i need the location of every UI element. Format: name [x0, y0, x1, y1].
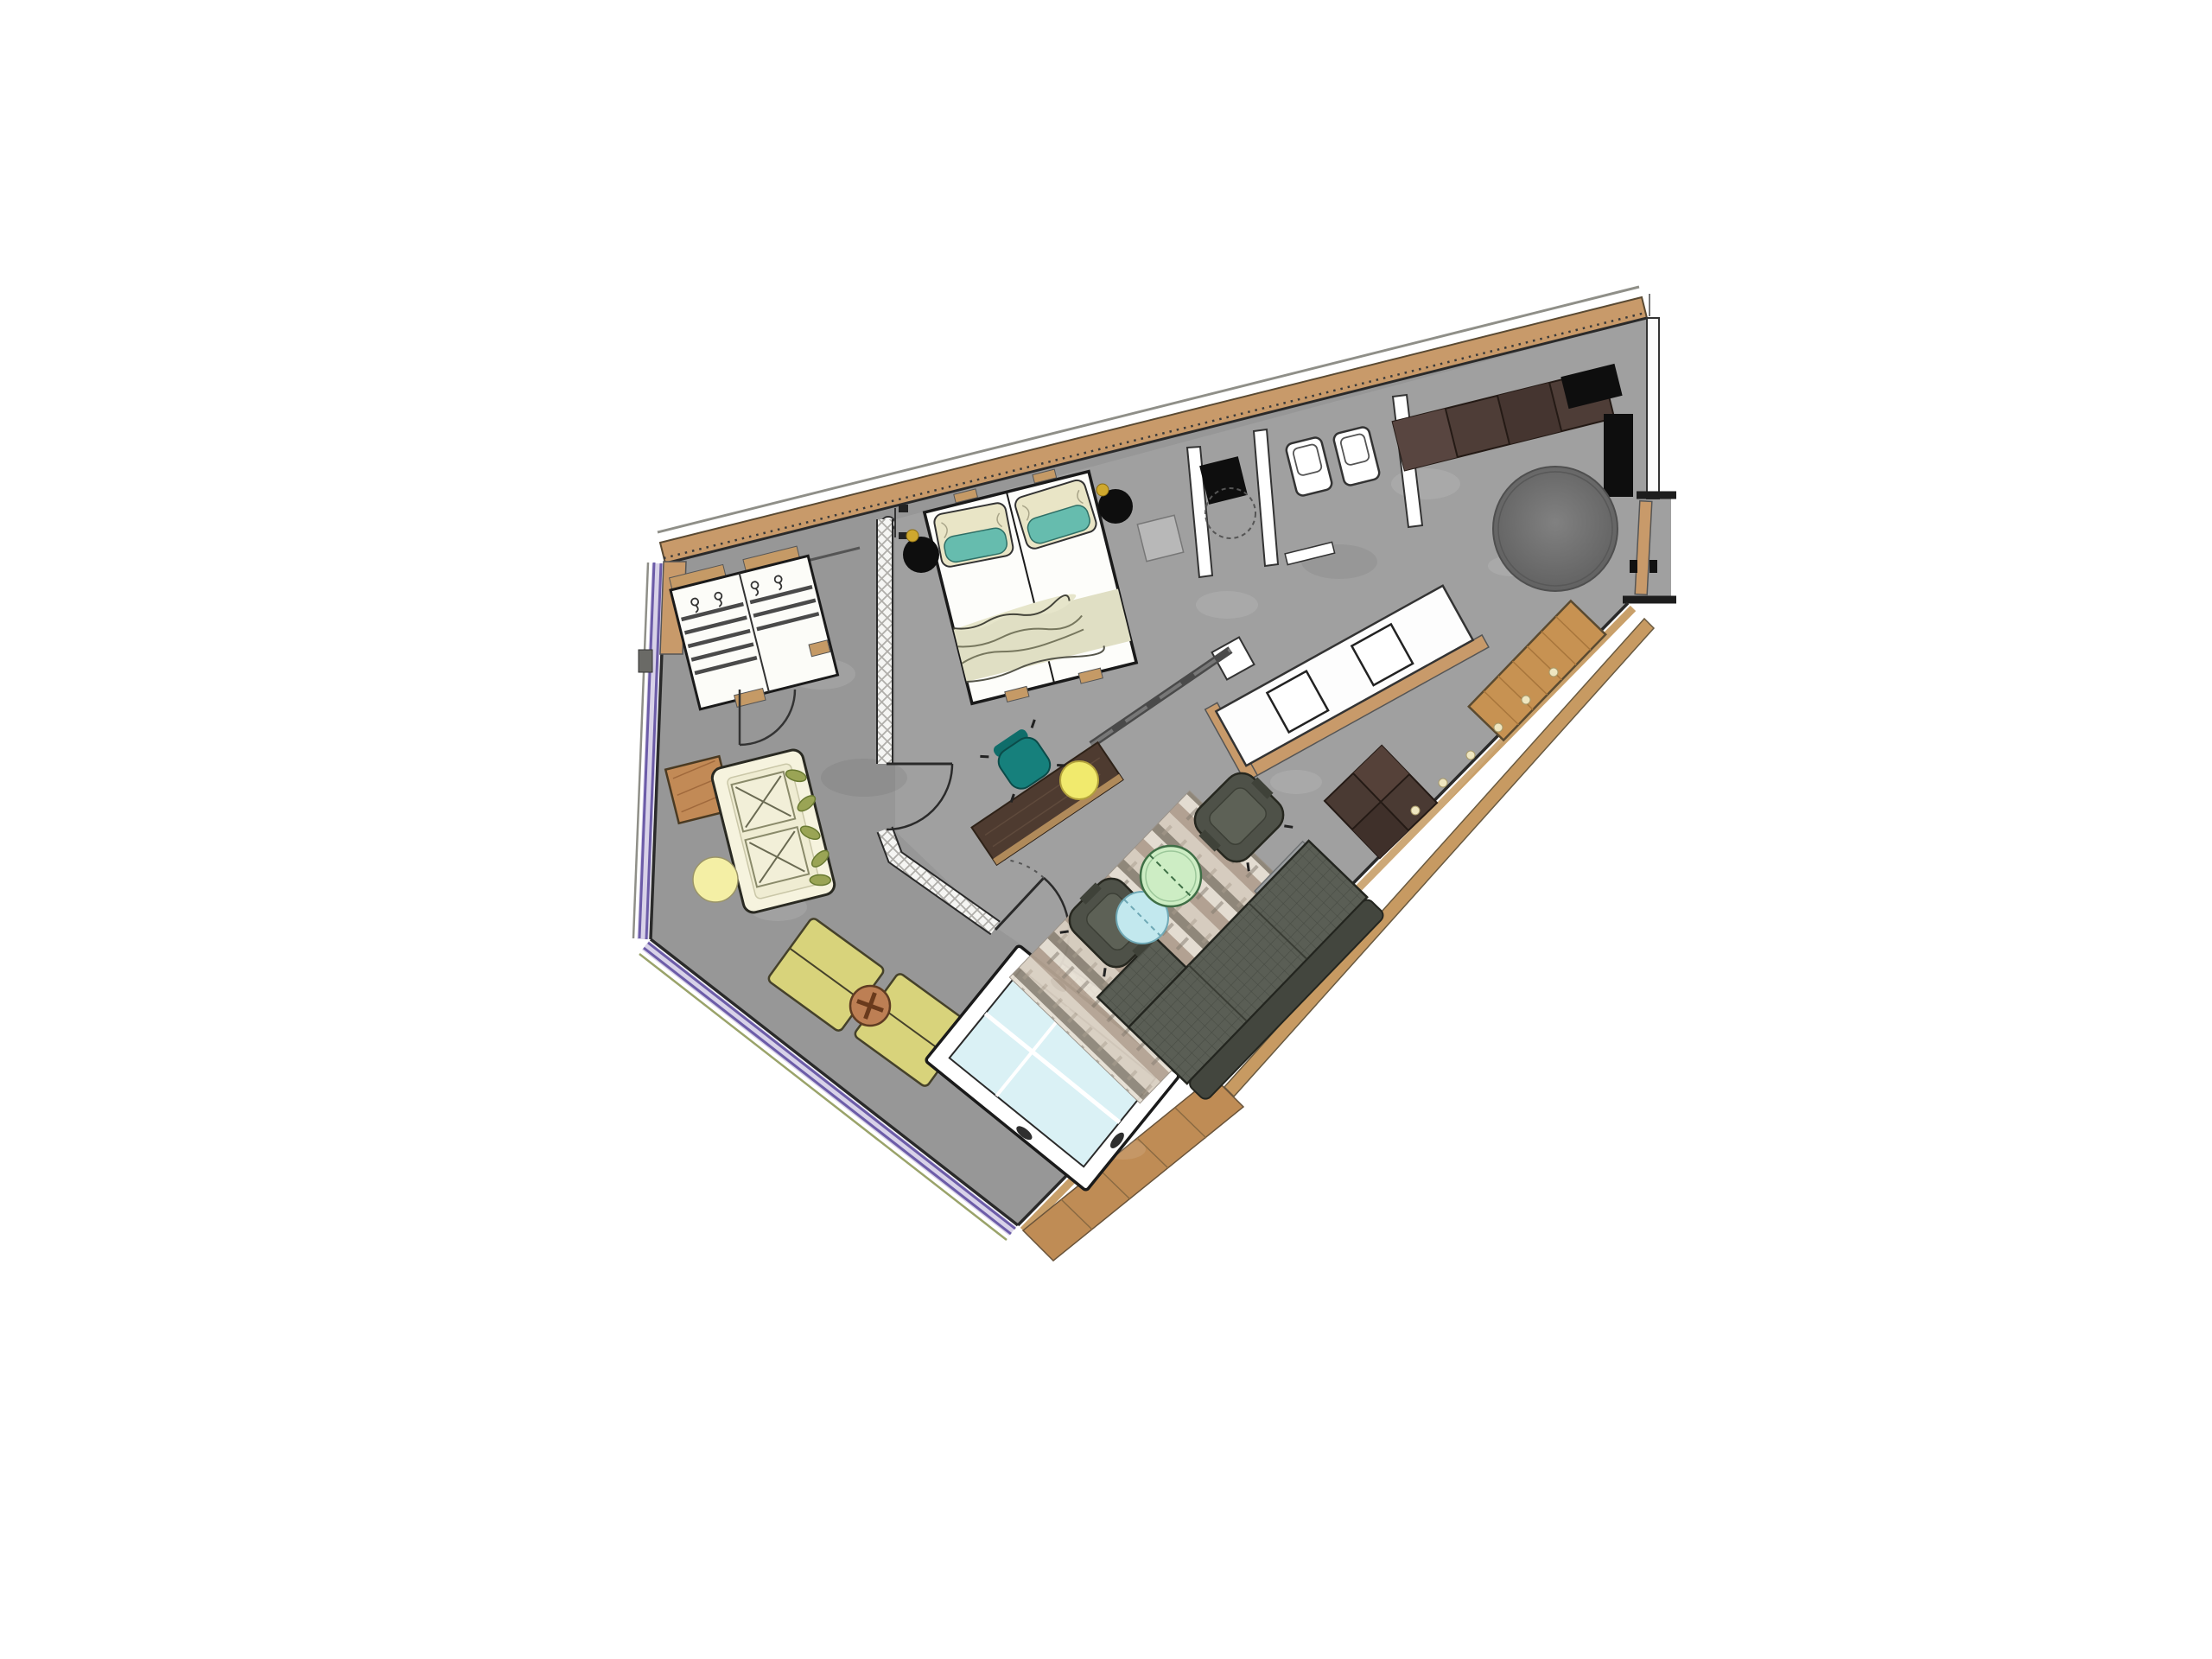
coffee-table-green [1141, 846, 1201, 906]
round-rug [1493, 467, 1618, 591]
bedside-lamp-left [906, 530, 918, 542]
floor-plan [0, 0, 2212, 1659]
door-handle-inner [1630, 560, 1637, 573]
pivot-bracket-top [899, 505, 908, 512]
right-wall [1647, 318, 1659, 499]
pouf [693, 857, 738, 902]
bedside-pendant-left [903, 537, 939, 573]
shower-shelf [1137, 515, 1183, 561]
cross-table [850, 986, 890, 1026]
entry-closet [1604, 414, 1633, 497]
door-handle-outer [1649, 560, 1657, 573]
page [0, 0, 2212, 1659]
bedside-lamp-right [1096, 484, 1109, 496]
window-mullion [639, 650, 652, 672]
stool [1060, 761, 1098, 799]
